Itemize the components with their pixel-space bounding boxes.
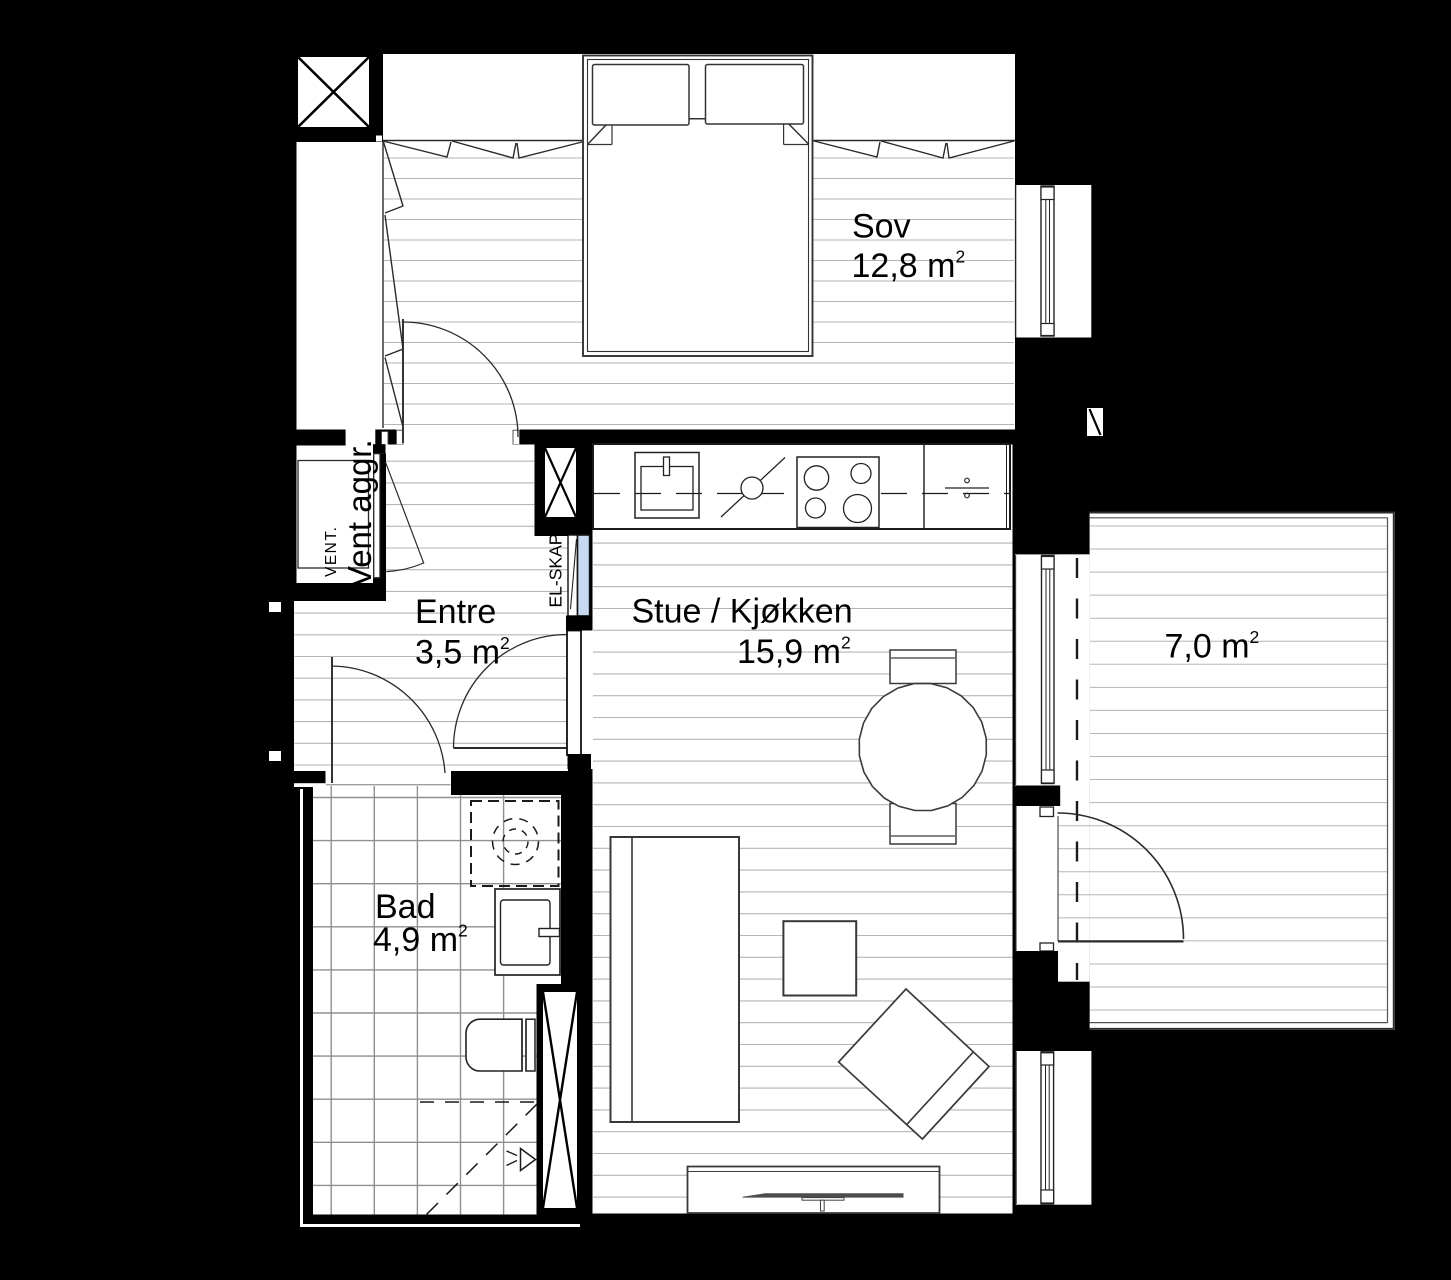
svg-text:Sov: Sov (852, 208, 911, 246)
svg-text:7,0 m2: 7,0 m2 (1165, 627, 1260, 666)
svg-text:4,9 m2: 4,9 m2 (373, 921, 468, 960)
svg-text:3,5 m2: 3,5 m2 (415, 633, 510, 672)
svg-text:Vent aggr.: Vent aggr. (341, 439, 378, 588)
svg-text:VENT.: VENT. (323, 526, 340, 577)
svg-text:12,8 m2: 12,8 m2 (852, 247, 966, 286)
svg-text:15,9 m2: 15,9 m2 (737, 633, 851, 672)
svg-text:Stue / Kjøkken: Stue / Kjøkken (632, 593, 853, 631)
svg-text:Entre: Entre (415, 593, 496, 631)
svg-text:EL-SKAP: EL-SKAP (546, 534, 566, 608)
